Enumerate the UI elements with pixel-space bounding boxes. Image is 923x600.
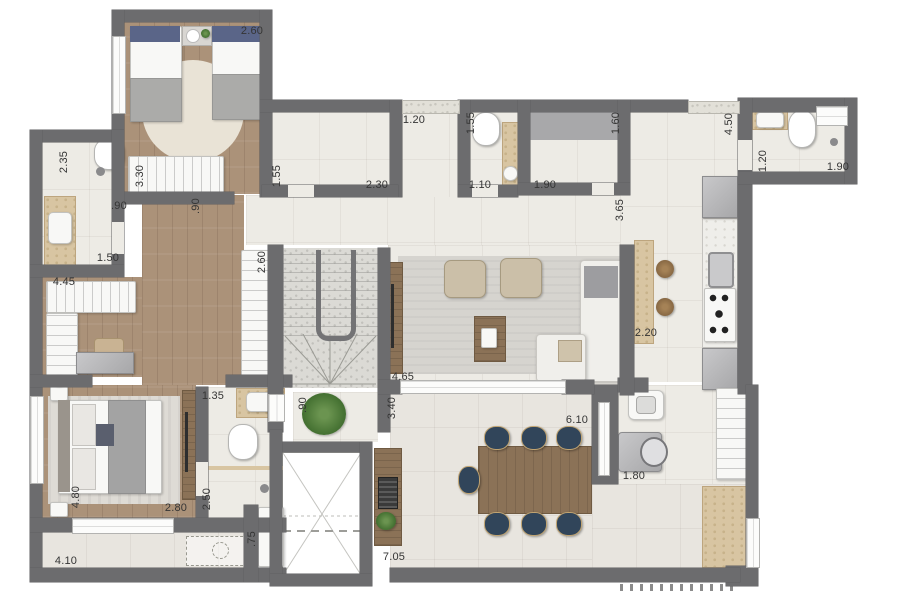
wall: [518, 100, 530, 195]
window-kitchen-sill: [688, 101, 740, 114]
wall: [244, 505, 258, 582]
toilet-bath-3: [788, 110, 816, 148]
wall: [270, 574, 372, 586]
door-gap-bath-left: [112, 222, 124, 254]
door-gap-hall-room: [592, 183, 614, 195]
window-balcony-door: [72, 518, 174, 534]
door-gap-master-bath: [196, 462, 208, 496]
cooktop-burners-icon: [704, 288, 734, 340]
fridge: [702, 176, 738, 218]
wardrobe-corridor: [241, 250, 271, 382]
balcony-chair-dashed: [212, 542, 229, 559]
washer-door-icon: [640, 437, 668, 467]
entry-door-sill: [402, 100, 460, 114]
floor-corridor: [142, 195, 244, 385]
shower-head-master-icon: [260, 484, 269, 493]
wall: [124, 192, 234, 204]
twin-bed-1-blanket: [130, 78, 182, 122]
nightstand-master-2: [50, 502, 68, 517]
oven: [702, 348, 738, 390]
wall: [270, 430, 282, 586]
plant-small-icon: [201, 29, 210, 38]
nightstand-master-1: [50, 386, 68, 401]
wall: [260, 100, 272, 197]
tv-master-icon: [185, 412, 188, 472]
dining-chair: [521, 426, 547, 450]
sofa-blanket: [584, 266, 618, 298]
floor-bathroom-social: [272, 112, 390, 190]
lamp: [186, 29, 200, 43]
closet-wardrobe-left: [46, 313, 78, 377]
window-laundry: [746, 518, 760, 568]
stair-fan-steps: [283, 334, 378, 386]
plant-bbq-icon: [376, 512, 396, 530]
laundry-cabinet: [716, 388, 748, 480]
railing-ticks: [620, 584, 734, 591]
sink-bath-2: [503, 166, 518, 181]
closet-dresser: [76, 352, 134, 374]
wall: [260, 100, 402, 112]
door-glass-laundry: [598, 402, 610, 476]
stool-2: [656, 298, 674, 316]
shower-head-bath-3-icon: [830, 138, 838, 146]
wall: [262, 185, 398, 197]
dining-chair: [556, 426, 582, 450]
wall: [738, 172, 857, 184]
twin-bed-2-pillow: [212, 26, 260, 42]
master-pillow-2: [72, 448, 96, 490]
wall: [260, 10, 272, 112]
armchair-1: [444, 260, 486, 298]
stair-handrail: [316, 250, 356, 341]
door-gap-bath-2: [472, 185, 498, 197]
wall: [360, 442, 372, 586]
master-pillow-1: [72, 404, 96, 446]
island-counter: [634, 240, 654, 344]
void-shaft: [282, 452, 362, 576]
dining-chair: [484, 512, 510, 536]
master-cushion: [96, 424, 114, 446]
floor-entry-hall: [402, 112, 458, 197]
wall: [378, 248, 390, 432]
wardrobe-twin: [128, 156, 224, 194]
door-gap-bath-3: [738, 140, 752, 170]
wall: [518, 100, 630, 112]
dining-table: [478, 446, 592, 514]
dining-chair-head: [458, 466, 480, 494]
wall: [30, 375, 92, 387]
plant-landing-icon: [302, 393, 346, 435]
wall: [378, 380, 402, 394]
tv-living-icon: [391, 284, 394, 348]
wall: [390, 568, 740, 582]
sink-bath-left: [48, 212, 72, 244]
coffee-table-tray: [481, 328, 497, 348]
master-headboard: [58, 400, 70, 492]
wall: [390, 100, 402, 197]
dining-chair: [556, 512, 582, 536]
window-master: [30, 396, 44, 484]
floor-plan-canvas: 2.602.353.30.90.901.552.301.201.551.101.…: [0, 0, 923, 600]
floor-hall-room: [530, 138, 618, 185]
laundry-tank-basin: [636, 396, 656, 414]
sink-bath-3: [756, 112, 784, 128]
sofa-cushion: [558, 340, 582, 362]
wall: [618, 100, 630, 195]
hall-shaft-fill: [530, 112, 618, 140]
wall: [562, 380, 594, 394]
twin-bed-2-blanket: [212, 74, 262, 120]
wall: [30, 130, 42, 582]
armchair-2: [500, 258, 542, 298]
kitchen-sink: [708, 252, 734, 288]
wall: [30, 265, 124, 277]
window-living-terrace: [400, 380, 566, 394]
wall: [620, 245, 634, 395]
toilet-master-bath: [228, 424, 258, 460]
void-x-hatch: [283, 453, 361, 575]
wall: [30, 130, 124, 142]
shower-box-bath-3: [816, 106, 848, 126]
wall: [196, 387, 208, 520]
shower-head-icon: [96, 167, 105, 176]
dining-chair: [521, 512, 547, 536]
wall: [280, 442, 372, 452]
window-landing: [268, 394, 285, 422]
wall: [630, 100, 688, 112]
stool-1: [656, 260, 674, 278]
window-twin: [112, 36, 126, 114]
grill-icon: [378, 477, 398, 509]
wall: [112, 10, 272, 22]
closet-wardrobe-top: [46, 281, 136, 313]
door-gap-bath-social: [288, 185, 314, 197]
master-blanket: [108, 400, 146, 494]
dining-chair: [484, 426, 510, 450]
twin-bed-1-pillow: [130, 26, 180, 42]
toilet-bath-2: [472, 112, 500, 146]
wall: [458, 100, 470, 197]
terrace-planter-strip: [702, 486, 748, 568]
